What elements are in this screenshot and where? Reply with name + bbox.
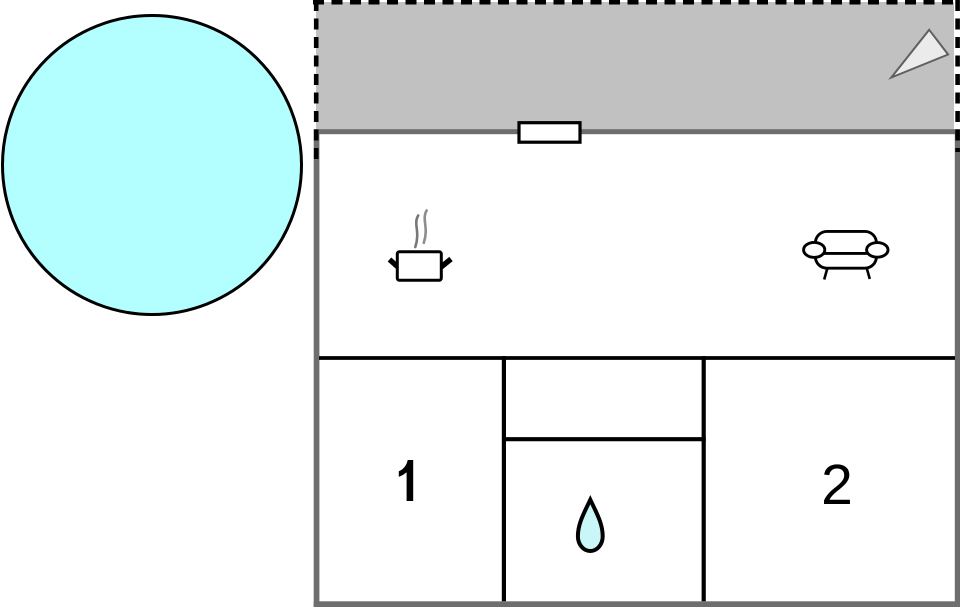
svg-text:2: 2 [821,453,853,517]
